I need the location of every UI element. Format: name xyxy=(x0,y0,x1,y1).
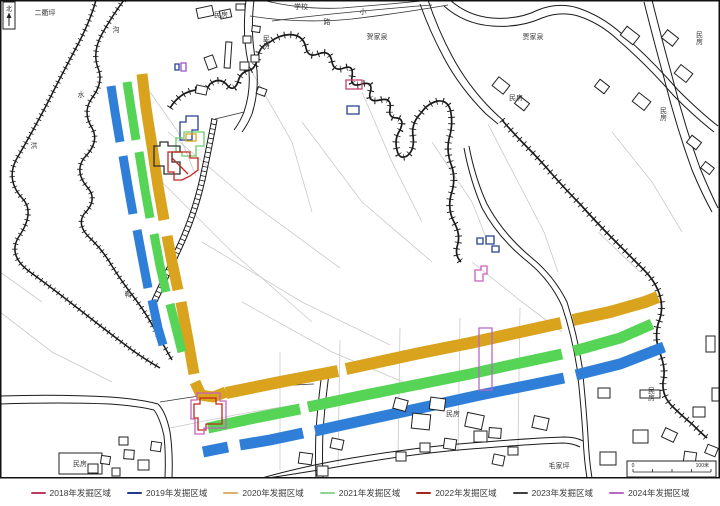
excavation-band-2019 xyxy=(111,86,120,142)
building xyxy=(204,55,217,70)
hachure-ticks xyxy=(12,0,160,368)
place-label: 民房 xyxy=(73,459,87,468)
parcel-line xyxy=(362,92,422,222)
legend-swatch-2020 xyxy=(223,492,238,494)
building xyxy=(632,93,651,111)
excavation-band-2019 xyxy=(240,433,303,445)
place-label: 贺家泉 xyxy=(367,32,388,41)
map-frame xyxy=(1,1,720,478)
building xyxy=(138,460,149,470)
excavation-band-2019 xyxy=(203,447,228,452)
building xyxy=(661,428,677,443)
road-line xyxy=(464,148,587,478)
excavation-bands xyxy=(111,74,664,452)
legend-label-2018: 2018年发掘区域 xyxy=(50,487,111,499)
excavation-band-2019 xyxy=(152,300,163,345)
parcel-line xyxy=(612,132,682,232)
path-line xyxy=(215,112,244,119)
legend-label-2020: 2020年发掘区域 xyxy=(242,487,303,499)
road-line xyxy=(469,146,592,478)
building xyxy=(532,416,549,431)
legend-swatch-2018 xyxy=(31,492,46,494)
road-line xyxy=(420,4,498,124)
building xyxy=(251,55,259,62)
building xyxy=(492,454,505,466)
place-label: 民房 xyxy=(509,93,523,102)
excavation-band-2019 xyxy=(137,230,148,288)
building xyxy=(411,413,430,430)
parcel-line xyxy=(598,232,640,272)
excavation-area-2019 xyxy=(486,236,494,244)
excavation-band-2020 xyxy=(167,236,178,290)
excavation-area-2019 xyxy=(180,116,198,140)
excavation-area-2024 xyxy=(475,266,487,281)
excavation-area-2019 xyxy=(175,64,179,70)
legend-item-2024: 2024年发掘区域 xyxy=(609,487,689,499)
scale-start-label: 0 xyxy=(632,463,635,469)
legend-label-2021: 2021年发掘区域 xyxy=(339,487,400,499)
building xyxy=(492,77,510,94)
place-label: 路 xyxy=(324,17,331,26)
site-map: 二衢坪沟水洪民房学校小路贺家泉民房贾家泉民房民房民房鸭民房民房毛家坪民房北010… xyxy=(0,0,720,479)
building xyxy=(598,388,610,398)
place-label: 民房 xyxy=(648,387,656,402)
building xyxy=(240,62,249,70)
legend-item-2023: 2023年发掘区域 xyxy=(513,487,593,499)
road-line xyxy=(652,0,718,208)
place-label: 学校 xyxy=(294,2,308,11)
building xyxy=(243,36,251,43)
parcel-line xyxy=(458,318,460,452)
legend-swatch-2019 xyxy=(127,492,142,494)
excavation-band-2019 xyxy=(123,156,133,214)
building xyxy=(508,447,518,455)
building xyxy=(633,430,648,443)
building xyxy=(420,443,430,452)
excavation-area-2019 xyxy=(347,106,359,114)
north-arrow: 北 xyxy=(3,2,15,29)
place-label: 鸭 xyxy=(125,290,132,299)
place-label: 民房 xyxy=(263,35,271,50)
legend-swatch-2022 xyxy=(416,492,431,494)
building xyxy=(100,455,110,464)
building xyxy=(236,4,245,10)
building xyxy=(489,428,502,439)
building xyxy=(465,412,485,429)
building xyxy=(661,30,678,46)
legend-item-2022: 2022年发掘区域 xyxy=(416,487,496,499)
excavation-area-2019 xyxy=(492,246,499,252)
building xyxy=(195,85,207,95)
legend-item-2018: 2018年发掘区域 xyxy=(31,487,111,499)
place-label: 民房 xyxy=(696,31,704,46)
building xyxy=(693,407,705,417)
legend-label-2022: 2022年发掘区域 xyxy=(435,487,496,499)
place-label: 毛家坪 xyxy=(549,461,570,470)
map-legend: 2018年发掘区域 2019年发掘区域 2020年发掘区域 2021年发掘区域 … xyxy=(0,479,720,506)
parcel-line xyxy=(162,182,312,322)
parcel-line xyxy=(432,142,487,240)
building xyxy=(705,444,719,456)
place-label: 小 xyxy=(360,7,367,16)
building xyxy=(256,87,267,97)
legend-label-2024: 2024年发掘区域 xyxy=(628,487,689,499)
excavation-band-2020 xyxy=(195,382,226,397)
scale-end-label: 100米 xyxy=(696,462,709,469)
building xyxy=(317,466,328,476)
place-label: 民房 xyxy=(446,409,460,418)
place-label: 民房 xyxy=(214,10,228,19)
scale-bar: 0100米 xyxy=(627,461,716,477)
legend-swatch-2023 xyxy=(513,492,528,494)
building xyxy=(620,26,639,45)
road-line xyxy=(450,0,718,126)
building xyxy=(124,450,135,460)
site-map-canvas: 二衢坪沟水洪民房学校小路贺家泉民房贾家泉民房民房民房鸭民房民房毛家坪民房北010… xyxy=(0,0,720,479)
excavation-band-2021 xyxy=(127,82,136,140)
building xyxy=(595,79,610,93)
building xyxy=(701,161,715,174)
building xyxy=(706,336,715,352)
building xyxy=(112,468,120,476)
legend-item-2020: 2020年发掘区域 xyxy=(223,487,303,499)
excavation-band-2021 xyxy=(139,152,150,218)
place-label: 沟 xyxy=(113,25,120,34)
terrain-edge-line xyxy=(12,0,160,368)
parcel-lines xyxy=(0,72,682,470)
place-label: 贾家泉 xyxy=(523,32,544,41)
building xyxy=(196,5,214,18)
place-label: 民房 xyxy=(660,107,668,122)
north-label: 北 xyxy=(6,5,12,13)
excavation-band-2020 xyxy=(573,297,658,320)
place-label: 水 xyxy=(78,90,85,99)
building xyxy=(443,438,456,450)
building xyxy=(429,397,446,411)
excavation-area-2019 xyxy=(477,238,483,244)
building xyxy=(600,452,616,465)
building xyxy=(474,431,487,442)
legend-swatch-2024 xyxy=(609,492,624,494)
place-label: 二衢坪 xyxy=(35,8,56,17)
building xyxy=(330,438,344,450)
building xyxy=(674,65,693,83)
building xyxy=(150,441,161,451)
building xyxy=(252,25,261,32)
place-label: 洪 xyxy=(31,141,38,150)
building xyxy=(119,437,128,445)
excavation-band-2021 xyxy=(574,324,652,351)
road-line xyxy=(0,403,154,410)
building xyxy=(298,452,312,465)
legend-swatch-2021 xyxy=(320,492,335,494)
excavation-area-2024 xyxy=(181,63,186,71)
parcel-line xyxy=(398,328,400,460)
legend-item-2019: 2019年发掘区域 xyxy=(127,487,207,499)
legend-label-2023: 2023年发掘区域 xyxy=(532,487,593,499)
legend-item-2021: 2021年发掘区域 xyxy=(320,487,400,499)
parcel-line xyxy=(202,242,390,345)
building xyxy=(88,464,98,473)
building xyxy=(224,42,232,68)
building xyxy=(396,452,406,461)
building xyxy=(687,135,702,149)
legend-label-2019: 2019年发掘区域 xyxy=(146,487,207,499)
